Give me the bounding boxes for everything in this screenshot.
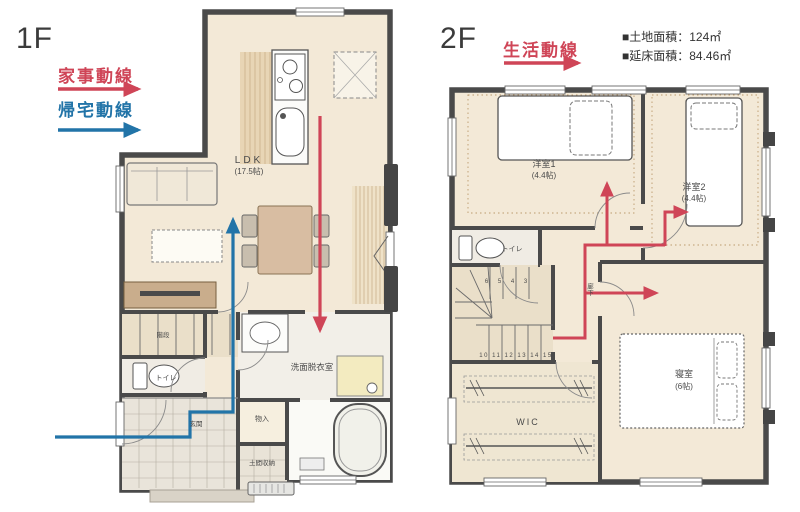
pillow xyxy=(570,101,612,155)
closet-label: 物入 xyxy=(255,414,269,423)
shutter-box xyxy=(763,410,775,424)
stairs2-top-numbers: 6 5 4 3 xyxy=(485,279,531,285)
outdoor-unit xyxy=(248,482,294,495)
bathtub xyxy=(334,404,386,476)
shutter-box xyxy=(384,266,398,312)
bath-counter xyxy=(300,458,324,470)
pillow xyxy=(691,103,737,129)
shutter-box xyxy=(384,164,398,226)
stairs1-floor xyxy=(122,312,238,357)
master-bedroom-label: 寝室 xyxy=(675,368,693,379)
ldk-label: LDK xyxy=(235,155,263,166)
shutter-box xyxy=(763,218,775,232)
floor2-plan: 6 5 4 3 10 11 12 13 14 15 xyxy=(448,86,775,486)
washroom-label: 洗面脱衣室 xyxy=(291,362,334,372)
floor1-plan: LDK (17.5帖) 階段 トイレ 洗面脱衣室 物入 土間収納 玄関 xyxy=(55,8,398,502)
bedroom1-size-label: (4.4帖) xyxy=(532,170,557,180)
master-bedroom-size-label: (6帖) xyxy=(675,381,693,391)
floorplan-drawing: LDK (17.5帖) 階段 トイレ 洗面脱衣室 物入 土間収納 玄関 6 5 … xyxy=(0,0,800,512)
bedroom2-label: 洋室2 xyxy=(682,181,705,192)
shutter-box xyxy=(763,132,775,146)
faucet xyxy=(280,113,286,119)
shutter-box xyxy=(763,332,775,346)
coffee-table xyxy=(152,230,222,262)
front-door-opening xyxy=(116,402,124,446)
stairs1-label: 階段 xyxy=(157,330,171,339)
porch-step xyxy=(150,490,254,502)
wash-basin xyxy=(250,322,280,344)
toilet2-fixture xyxy=(459,236,504,260)
pillow xyxy=(717,342,737,378)
stove xyxy=(275,54,305,100)
window xyxy=(448,398,456,444)
pillow xyxy=(717,384,737,420)
doma-storage-label: 土間収納 xyxy=(249,458,275,467)
dining-chair xyxy=(242,215,257,237)
toilet-tank xyxy=(133,363,147,389)
master-bedroom-furniture xyxy=(620,334,744,428)
washer-drain xyxy=(367,383,377,393)
dining-table xyxy=(258,206,312,274)
tv xyxy=(140,291,200,296)
stairs2-bottom-numbers: 10 11 12 13 14 15 xyxy=(479,353,552,359)
toilet1-label: トイレ xyxy=(156,375,177,382)
toilet-bowl xyxy=(476,238,504,258)
bedroom1-label: 洋室1 xyxy=(532,158,555,169)
bedroom2-size-label: (4.4帖) xyxy=(682,193,707,203)
toilet2-label: トイレ xyxy=(502,246,523,253)
sofa xyxy=(127,163,217,205)
ldk-size-label: (17.5帖) xyxy=(235,166,264,176)
toilet-tank xyxy=(459,236,472,260)
floorplan-canvas: 1F 家事動線 帰宅動線 2F 生活動線 ■土地面積：124㎡ ■延床面積：84… xyxy=(0,0,800,512)
wic-label: WIC xyxy=(516,417,540,427)
outdoor-unit-body xyxy=(248,482,294,495)
dining-chair xyxy=(242,245,257,267)
wood-deck-strip xyxy=(352,186,388,304)
entrance-label: 玄関 xyxy=(190,419,203,428)
